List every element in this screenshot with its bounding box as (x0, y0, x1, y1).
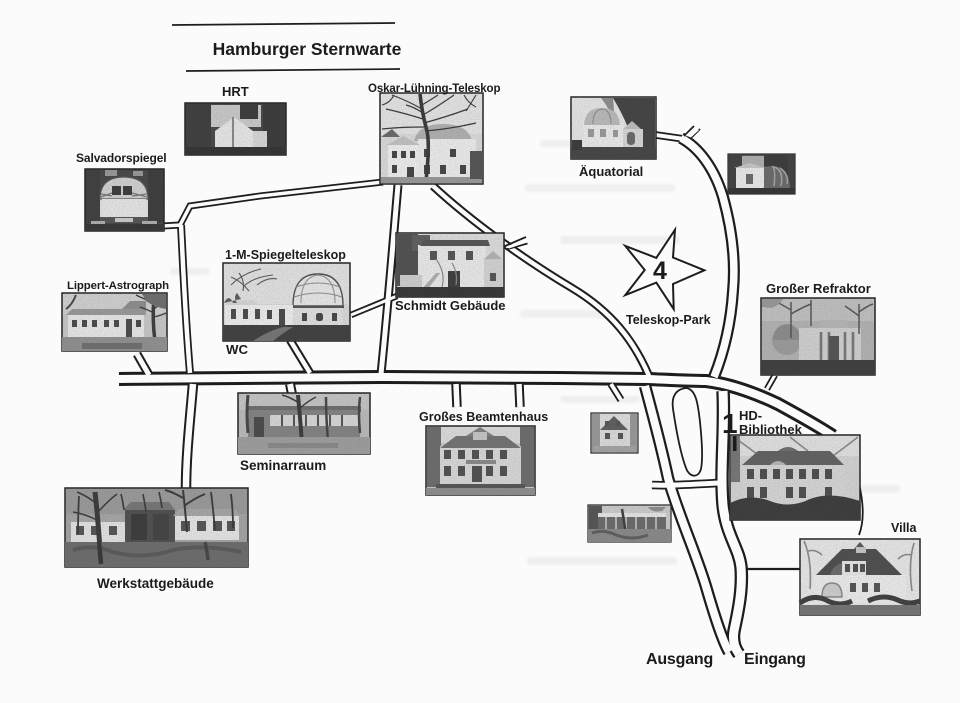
svg-text:Großes Beamtenhaus: Großes Beamtenhaus (419, 410, 548, 424)
svg-text:Eingang: Eingang (744, 651, 806, 668)
svg-text:Lippert-Astrograph: Lippert-Astrograph (67, 280, 169, 292)
svg-text:1: 1 (722, 408, 738, 439)
svg-text:Ausgang: Ausgang (646, 651, 713, 668)
svg-text:Villa: Villa (891, 521, 918, 535)
svg-text:Oskar-Lühning-Teleskop: Oskar-Lühning-Teleskop (368, 83, 500, 95)
svg-text:1-M-Spiegelteleskop: 1-M-Spiegelteleskop (225, 248, 346, 262)
svg-text:Werkstattgebäude: Werkstattgebäude (97, 576, 214, 591)
svg-text:Seminarraum: Seminarraum (240, 458, 326, 473)
svg-text:Schmidt Gebäude: Schmidt Gebäude (395, 298, 506, 313)
svg-text:HRT: HRT (222, 84, 249, 99)
svg-text:Teleskop-Park: Teleskop-Park (626, 313, 711, 327)
svg-text:Äquatorial: Äquatorial (579, 164, 643, 179)
svg-text:Großer Refraktor: Großer Refraktor (766, 281, 871, 296)
svg-text:WC: WC (226, 342, 248, 357)
svg-text:Hamburger Sternwarte: Hamburger Sternwarte (213, 39, 402, 59)
svg-text:Salvadorspiegel: Salvadorspiegel (76, 151, 167, 165)
svg-text:Bibliothek: Bibliothek (739, 422, 803, 437)
svg-text:HD-: HD- (739, 408, 762, 423)
svg-text:4: 4 (653, 257, 667, 285)
